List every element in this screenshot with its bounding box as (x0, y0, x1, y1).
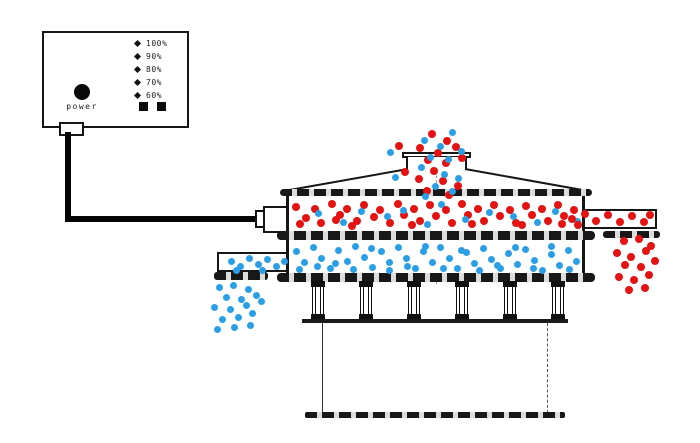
inlet-collar (406, 157, 467, 169)
middle-screen-band (277, 231, 595, 240)
coarse-outlet-lip (603, 231, 660, 238)
vibrating-sieve-diagram: power 100% 90% 80% 70% 60% (0, 0, 700, 443)
lower-deck (286, 240, 585, 273)
lid-rim-band (280, 189, 592, 196)
base-cylinder (322, 323, 548, 413)
base-flange (305, 412, 565, 418)
support-spring (311, 281, 325, 320)
fine-outlet-left (217, 252, 286, 272)
support-spring (455, 281, 469, 320)
support-spring (551, 281, 565, 320)
coarse-outlet-right (585, 209, 657, 229)
upper-deck (286, 196, 585, 231)
support-spring (503, 281, 517, 320)
support-spring (407, 281, 421, 320)
support-spring (359, 281, 373, 320)
fine-outlet-lip (214, 272, 268, 280)
